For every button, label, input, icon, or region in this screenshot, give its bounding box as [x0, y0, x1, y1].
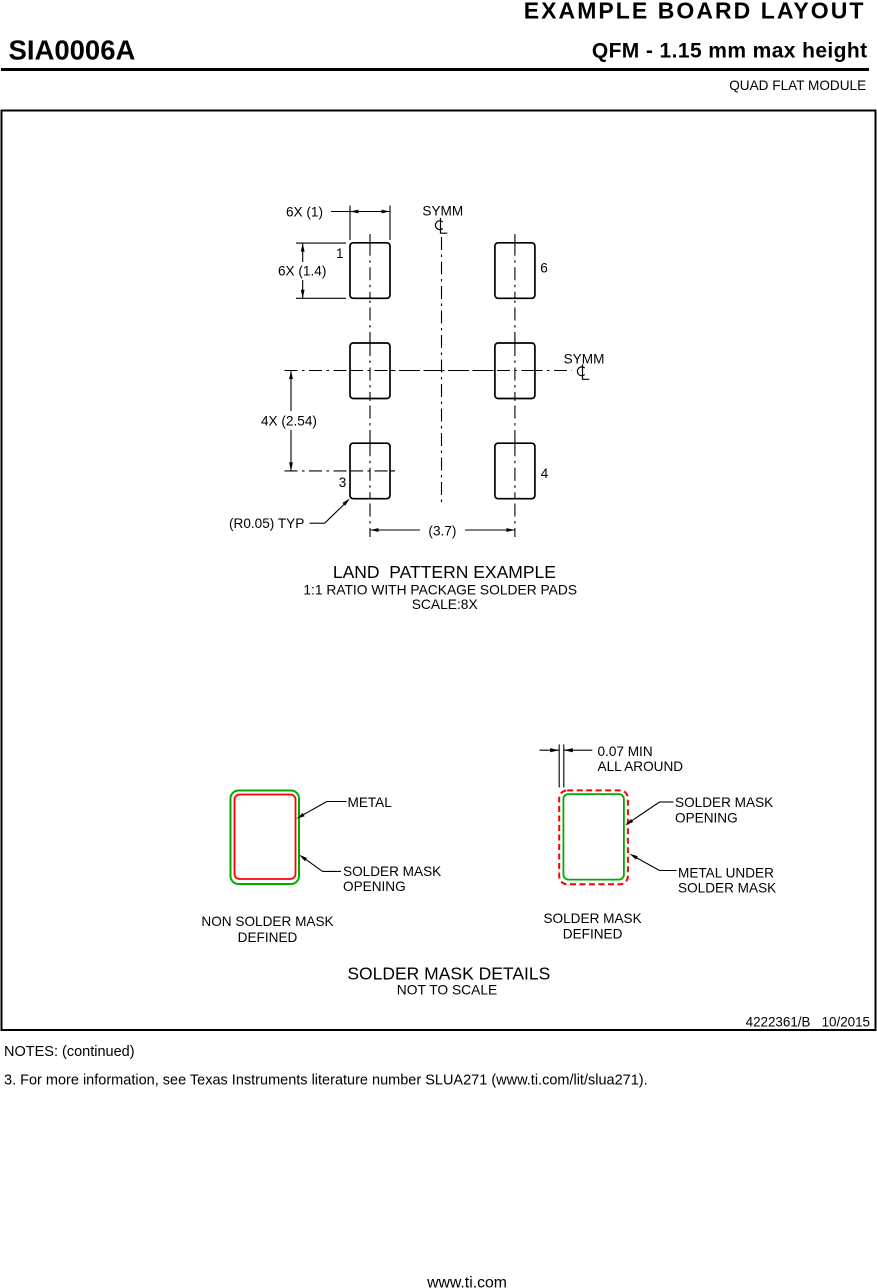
svg-text:SOLDER MASK: SOLDER MASK — [678, 881, 776, 896]
svg-text:6X (1): 6X (1) — [286, 204, 323, 219]
svg-text:6: 6 — [540, 261, 548, 276]
svg-text:SOLDER MASK: SOLDER MASK — [675, 795, 773, 810]
svg-text:OPENING: OPENING — [675, 811, 738, 826]
svg-text:DEFINED: DEFINED — [238, 930, 298, 945]
svg-text:1: 1 — [336, 246, 344, 261]
svg-text:QFM - 1.15 mm max height: QFM - 1.15 mm max height — [592, 40, 868, 63]
svg-text:LAND PATTERN EXAMPLE: LAND PATTERN EXAMPLE — [333, 562, 556, 582]
svg-text:(3.7): (3.7) — [428, 523, 456, 538]
svg-text:SIA0006A: SIA0006A — [9, 35, 136, 66]
svg-text:OPENING: OPENING — [343, 879, 406, 894]
svg-text:SOLDER MASK: SOLDER MASK — [543, 911, 641, 926]
svg-text:1:1 RATIO WITH PACKAGE SOLDER: 1:1 RATIO WITH PACKAGE SOLDER PADS — [303, 582, 577, 597]
svg-text:0.07 MIN: 0.07 MIN — [598, 744, 653, 759]
svg-text:NOTES: (continued): NOTES: (continued) — [4, 1044, 135, 1060]
svg-text:QUAD FLAT MODULE: QUAD FLAT MODULE — [729, 78, 866, 93]
svg-text:SOLDER MASK: SOLDER MASK — [343, 864, 441, 879]
svg-text:4: 4 — [541, 466, 549, 481]
svg-text:SOLDER MASK DETAILS: SOLDER MASK DETAILS — [347, 963, 550, 983]
svg-text:METAL UNDER: METAL UNDER — [678, 866, 774, 881]
svg-text:3: 3 — [339, 475, 347, 490]
svg-text:DEFINED: DEFINED — [563, 926, 623, 941]
svg-text:SYMM: SYMM — [422, 203, 463, 218]
svg-text:NOT TO SCALE: NOT TO SCALE — [397, 983, 497, 998]
svg-text:NON SOLDER MASK: NON SOLDER MASK — [201, 914, 333, 929]
svg-text:4222361/B 10/2015: 4222361/B 10/2015 — [746, 1015, 870, 1030]
svg-text:www.ti.com: www.ti.com — [426, 1274, 507, 1288]
svg-text:ALL AROUND: ALL AROUND — [598, 759, 684, 774]
svg-text:4X (2.54): 4X (2.54) — [261, 414, 317, 429]
svg-text:SCALE:8X: SCALE:8X — [412, 597, 478, 612]
svg-text:6X (1.4): 6X (1.4) — [278, 264, 326, 279]
svg-text:(R0.05) TYP: (R0.05) TYP — [229, 516, 304, 531]
svg-text:SYMM: SYMM — [564, 352, 605, 367]
svg-text:3. For more information, see T: 3. For more information, see Texas Instr… — [4, 1073, 648, 1089]
svg-text:EXAMPLE BOARD LAYOUT: EXAMPLE BOARD LAYOUT — [524, 0, 866, 24]
svg-text:METAL: METAL — [348, 795, 393, 810]
